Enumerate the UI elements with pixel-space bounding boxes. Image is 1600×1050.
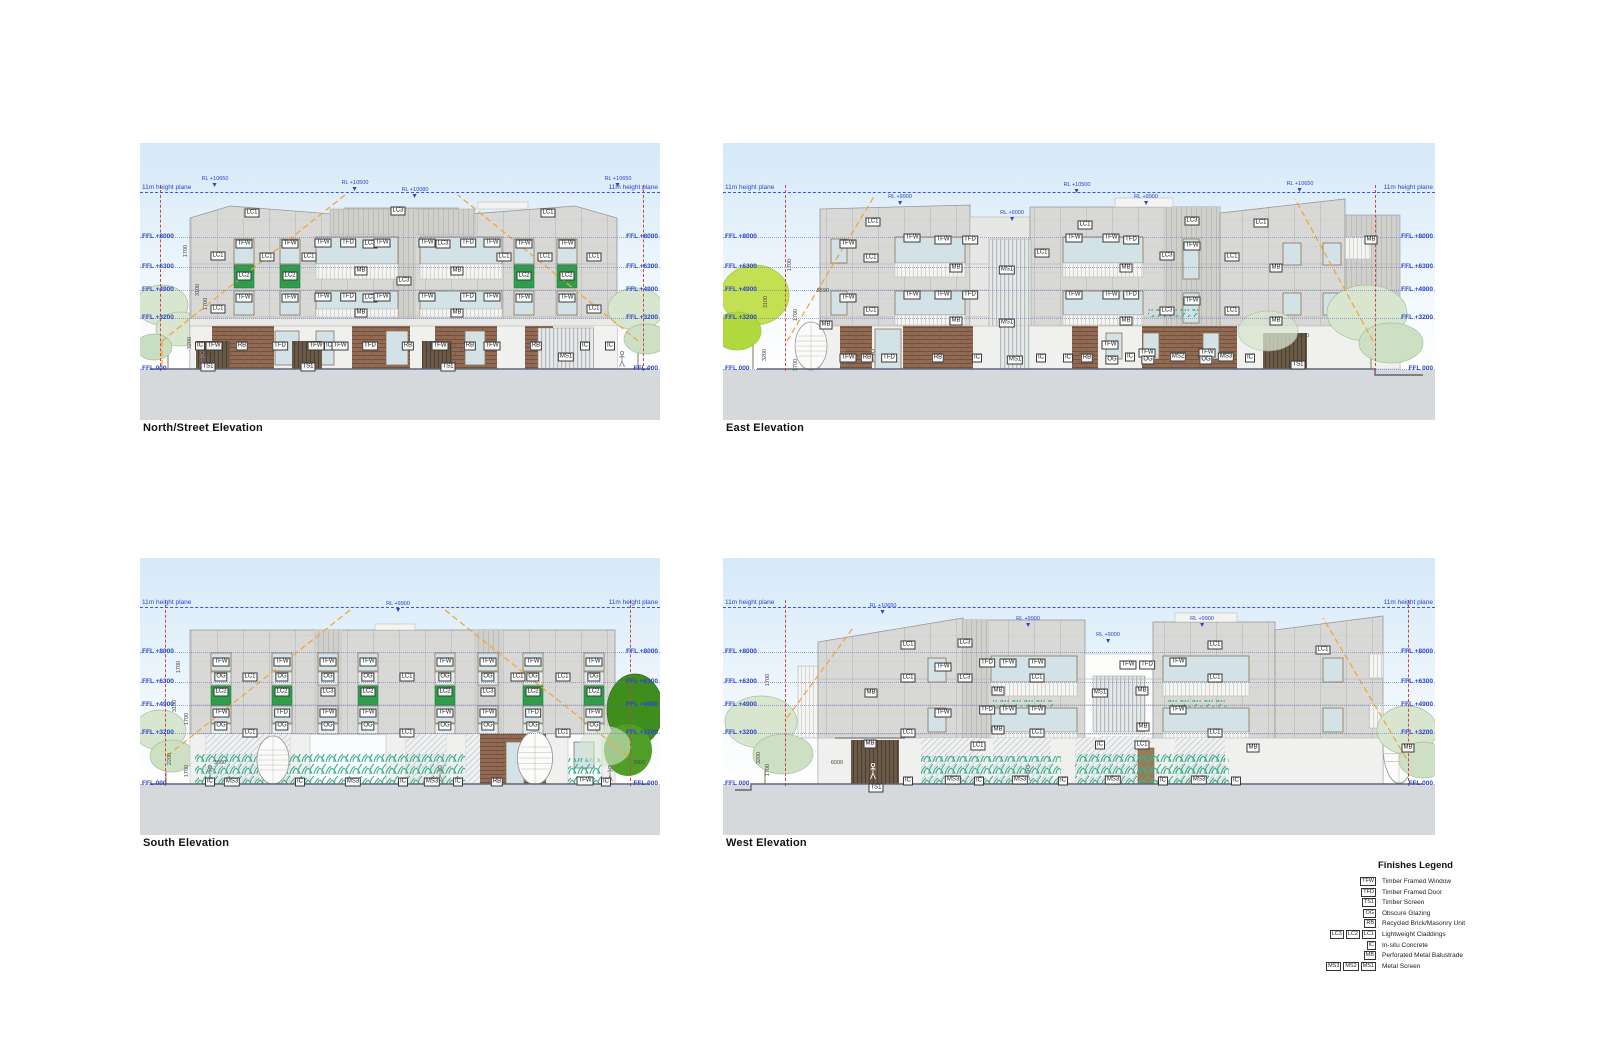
legend-tag-group: TFW bbox=[1322, 877, 1376, 886]
legend-row: MBPerforated Metal Balustrade bbox=[1322, 951, 1492, 960]
elevation-panel-north: 11m height plane11m height planeFFL +800… bbox=[140, 143, 660, 453]
legend-desc: Timber Framed Window bbox=[1382, 878, 1451, 885]
legend-tag-box: TS1 bbox=[1362, 898, 1376, 907]
legend-tag-box: TFW bbox=[1360, 877, 1376, 886]
legend-tag-box: MS3 bbox=[1326, 962, 1341, 971]
south-elevation-drawing bbox=[140, 558, 660, 848]
elevation-panel-west: 11m height plane11m height planeFFL +800… bbox=[723, 558, 1435, 868]
legend-tag-box: LC3 bbox=[1330, 930, 1344, 939]
legend-desc: Timber Framed Door bbox=[1382, 889, 1442, 896]
legend-row: TFWTimber Framed Window bbox=[1322, 877, 1492, 886]
elevation-title: North/Street Elevation bbox=[143, 422, 263, 434]
legend-tag-group: MB bbox=[1322, 951, 1376, 960]
boundary-line bbox=[643, 185, 644, 371]
legend-tag-group: IC bbox=[1322, 941, 1376, 950]
legend-tag-group: OG bbox=[1322, 909, 1376, 918]
elevation-panel-east: 11m height plane11m height planeFFL +800… bbox=[723, 143, 1435, 453]
boundary-line bbox=[785, 185, 786, 371]
legend-desc: Timber Screen bbox=[1382, 899, 1424, 906]
legend-tag-group: TFD bbox=[1322, 888, 1376, 897]
legend-tag-box: LC2 bbox=[1346, 930, 1360, 939]
elevation-title: West Elevation bbox=[726, 837, 807, 849]
legend-tag-box: OG bbox=[1363, 909, 1376, 918]
legend-tag-box: LC1 bbox=[1362, 930, 1376, 939]
finishes-legend: Finishes Legend TFWTimber Framed WindowT… bbox=[1322, 860, 1492, 972]
tree-graphic bbox=[140, 710, 194, 784]
east-elevation-drawing bbox=[723, 143, 1435, 433]
legend-desc: In-situ Concrete bbox=[1382, 942, 1428, 949]
boundary-line bbox=[160, 185, 161, 371]
legend-row: OGObscure Glazing bbox=[1322, 909, 1492, 918]
legend-tag-box: IC bbox=[1367, 941, 1377, 950]
legend-tag-box: TFD bbox=[1361, 888, 1376, 897]
boundary-line bbox=[165, 600, 166, 786]
legend-row: TS1Timber Screen bbox=[1322, 898, 1492, 907]
legend-tag-box: RB bbox=[1364, 919, 1376, 928]
boundary-line bbox=[1408, 600, 1409, 786]
legend-rows: TFWTimber Framed WindowTFDTimber Framed … bbox=[1322, 877, 1492, 971]
west-elevation-drawing bbox=[723, 558, 1435, 848]
legend-row: RBRecycled Brick/Masonry Unit bbox=[1322, 919, 1492, 928]
legend-tag-group: MS3MS2MS1 bbox=[1322, 962, 1376, 971]
legend-tag-group: LC3LC2LC1 bbox=[1322, 930, 1376, 939]
tree-graphic bbox=[723, 265, 789, 369]
legend-title: Finishes Legend bbox=[1378, 860, 1492, 871]
elevation-title: South Elevation bbox=[143, 837, 229, 849]
legend-tag-box: MS2 bbox=[1343, 962, 1358, 971]
boundary-line bbox=[1375, 185, 1376, 371]
legend-row: ICIn-situ Concrete bbox=[1322, 941, 1492, 950]
legend-tag-box: MB bbox=[1364, 951, 1376, 960]
boundary-line bbox=[785, 600, 786, 786]
legend-row: TFDTimber Framed Door bbox=[1322, 888, 1492, 897]
legend-desc: Recycled Brick/Masonry Unit bbox=[1382, 920, 1465, 927]
legend-row: LC3LC2LC1Lightweight Claddings bbox=[1322, 930, 1492, 939]
legend-desc: Obscure Glazing bbox=[1382, 910, 1430, 917]
north-elevation-drawing bbox=[140, 143, 660, 433]
elevation-title: East Elevation bbox=[726, 422, 804, 434]
legend-tag-group: RB bbox=[1322, 919, 1376, 928]
legend-desc: Perforated Metal Balustrade bbox=[1382, 952, 1463, 959]
legend-row: MS3MS2MS1Metal Screen bbox=[1322, 962, 1492, 971]
elevation-panel-south: 11m height plane11m height planeFFL +800… bbox=[140, 558, 660, 868]
legend-tag-group: TS1 bbox=[1322, 898, 1376, 907]
legend-desc: Metal Screen bbox=[1382, 963, 1420, 970]
legend-tag-box: MS1 bbox=[1361, 962, 1376, 971]
legend-desc: Lightweight Claddings bbox=[1382, 931, 1446, 938]
boundary-line bbox=[630, 600, 631, 786]
